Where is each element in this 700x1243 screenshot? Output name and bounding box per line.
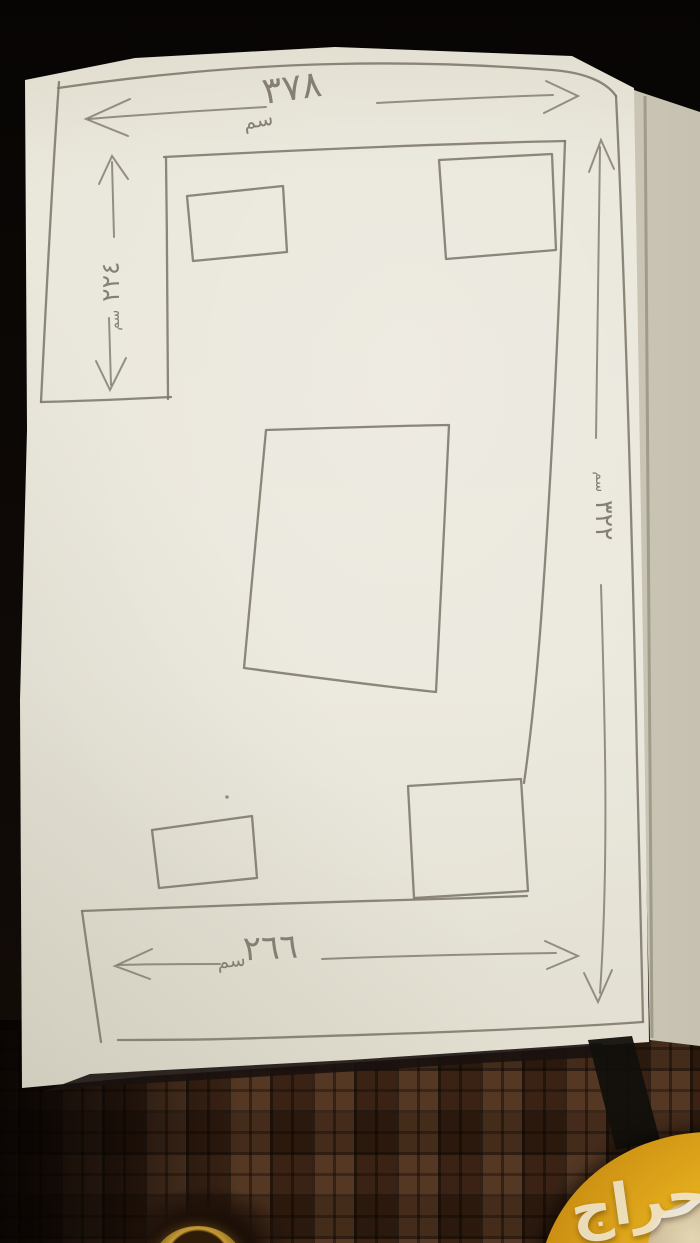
furniture-rect-bottom-left (152, 816, 257, 888)
dimension-label-left-unit: سم (107, 310, 123, 331)
furniture-rect-center (244, 425, 449, 692)
dimension-label-bottom-unit: سم (216, 949, 247, 974)
dimension-label-right-value: ٣٢٢ (590, 500, 619, 540)
inner-partition-lines (164, 141, 565, 783)
dimension-label-left-value: ٢٢٤ (96, 262, 125, 302)
dimension-label-left: ٢٢٤ سم (96, 204, 134, 388)
dimension-arrow-bottom (115, 941, 578, 979)
dimension-label-bottom-value: ٢٦٦ (242, 927, 299, 970)
furniture-rect-top-left (187, 186, 287, 261)
furniture-rect-top-right (439, 154, 556, 259)
dimension-label-right-unit: سم (592, 472, 608, 493)
stray-pencil-dot (225, 795, 229, 799)
photo-of-notebook-sketch: ٣٧٨ سم ٢٢٤ سم ٣٢٢ سم ٢٦٦ سم حراج (0, 0, 700, 1243)
bottom-band-outline (82, 896, 527, 1042)
furniture-rect-bottom-right (408, 779, 528, 898)
dimension-label-top-unit: سم (241, 106, 275, 135)
dimension-label-right: ٣٢٢ سم (581, 418, 619, 594)
page-gutter-line (645, 96, 652, 1038)
dimension-arrow-top (86, 81, 578, 136)
